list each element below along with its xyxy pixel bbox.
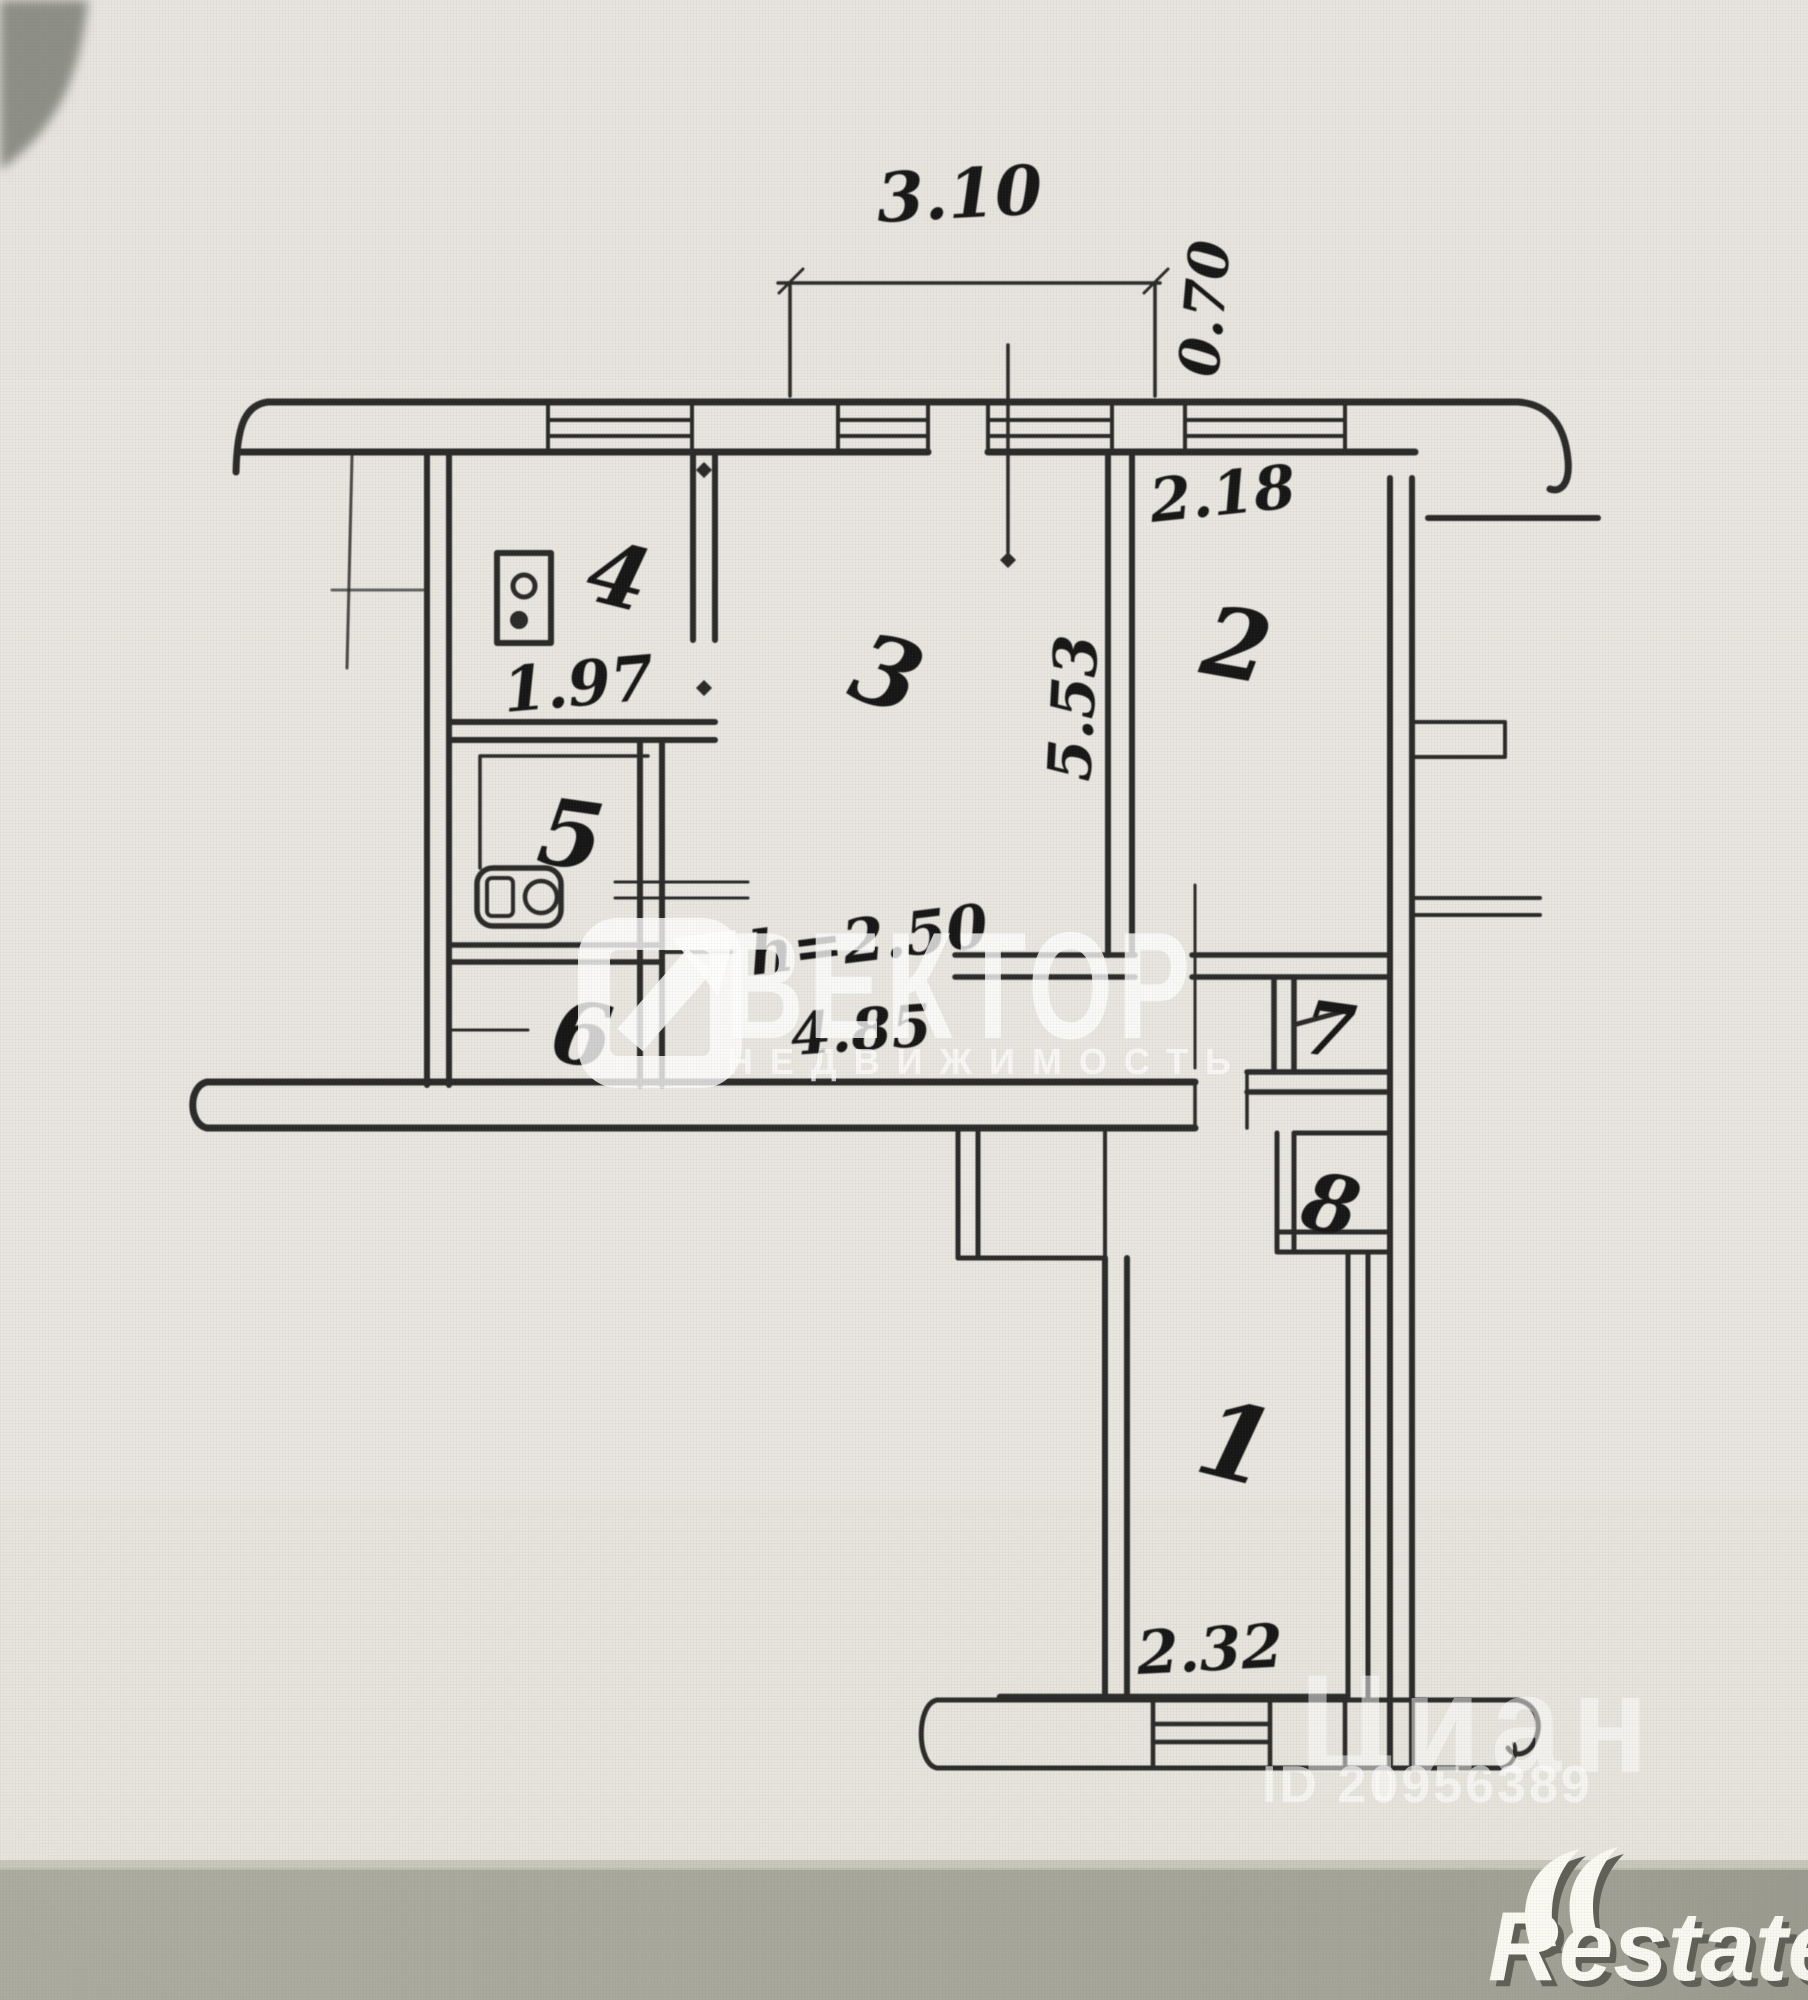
dimension-balcony-width: 3.10 — [875, 150, 1045, 239]
cian-listing-id: ID 20956389 — [1262, 1756, 1593, 1814]
dimension-kitchen-width: 1.97 — [500, 641, 657, 727]
dimension-room3-depth: 5.53 — [1035, 633, 1113, 783]
restate-brand: Restate — [1488, 1891, 1808, 2000]
dimension-balcony-depth: 0.70 — [1166, 238, 1244, 380]
vektor-subtitle: НЕДВИЖИМОСТЬ — [727, 1041, 1248, 1082]
dimension-room1-width: 2.32 — [1134, 1611, 1285, 1689]
scanned-floor-plan: 3.10 0.70 4 1.97 5 6 3 5.53 2.18 2 h=2.5… — [0, 0, 1808, 2000]
cian-watermark: Циан ID 20956389 — [1262, 1646, 1659, 1814]
